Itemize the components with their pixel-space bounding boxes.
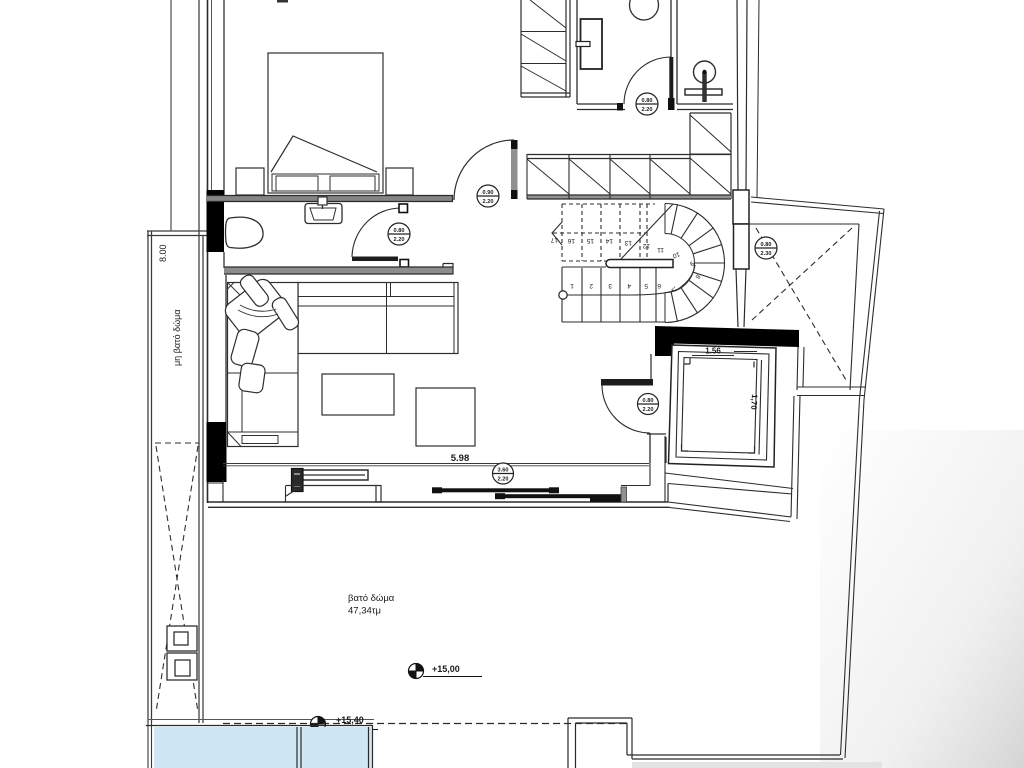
svg-text:17: 17 (550, 236, 558, 243)
svg-text:2.30: 2.30 (761, 251, 772, 257)
svg-text:2.20: 2.20 (498, 476, 509, 482)
svg-text:4: 4 (627, 282, 631, 289)
svg-text:5: 5 (644, 282, 648, 289)
svg-text:1,70: 1,70 (749, 394, 759, 411)
svg-text:3: 3 (608, 282, 612, 289)
svg-text:10: 10 (671, 250, 681, 259)
svg-text:0.80: 0.80 (394, 228, 405, 234)
svg-text:0.80: 0.80 (761, 242, 772, 248)
svg-text:47,34τμ: 47,34τμ (348, 606, 381, 617)
svg-text:6: 6 (657, 282, 661, 289)
svg-text:5.98: 5.98 (451, 453, 470, 464)
svg-text:2.20: 2.20 (394, 237, 405, 243)
svg-text:1: 1 (570, 282, 574, 289)
svg-text:2.20: 2.20 (643, 407, 654, 413)
svg-text:0.80: 0.80 (643, 398, 654, 404)
svg-text:14: 14 (605, 237, 613, 244)
svg-text:13: 13 (624, 239, 632, 246)
svg-text:2.20: 2.20 (483, 199, 494, 205)
svg-text:12: 12 (642, 242, 650, 249)
svg-text:2: 2 (589, 282, 593, 289)
svg-text:7: 7 (671, 284, 677, 292)
svg-text:μη βατό δώμα: μη βατό δώμα (172, 309, 182, 366)
svg-text:1.56: 1.56 (705, 347, 721, 356)
svg-text:0.90: 0.90 (483, 190, 494, 196)
svg-text:0.80: 0.80 (642, 98, 653, 104)
svg-text:2.20: 2.20 (642, 107, 653, 113)
svg-text:15: 15 (586, 237, 594, 244)
svg-text:16: 16 (567, 237, 575, 244)
svg-text:+15,00: +15,00 (432, 664, 460, 674)
svg-text:11: 11 (657, 246, 664, 253)
svg-text:3.60: 3.60 (498, 468, 509, 474)
svg-text:8.00: 8.00 (158, 244, 168, 262)
svg-text:βατό δώμα: βατό δώμα (348, 593, 395, 604)
